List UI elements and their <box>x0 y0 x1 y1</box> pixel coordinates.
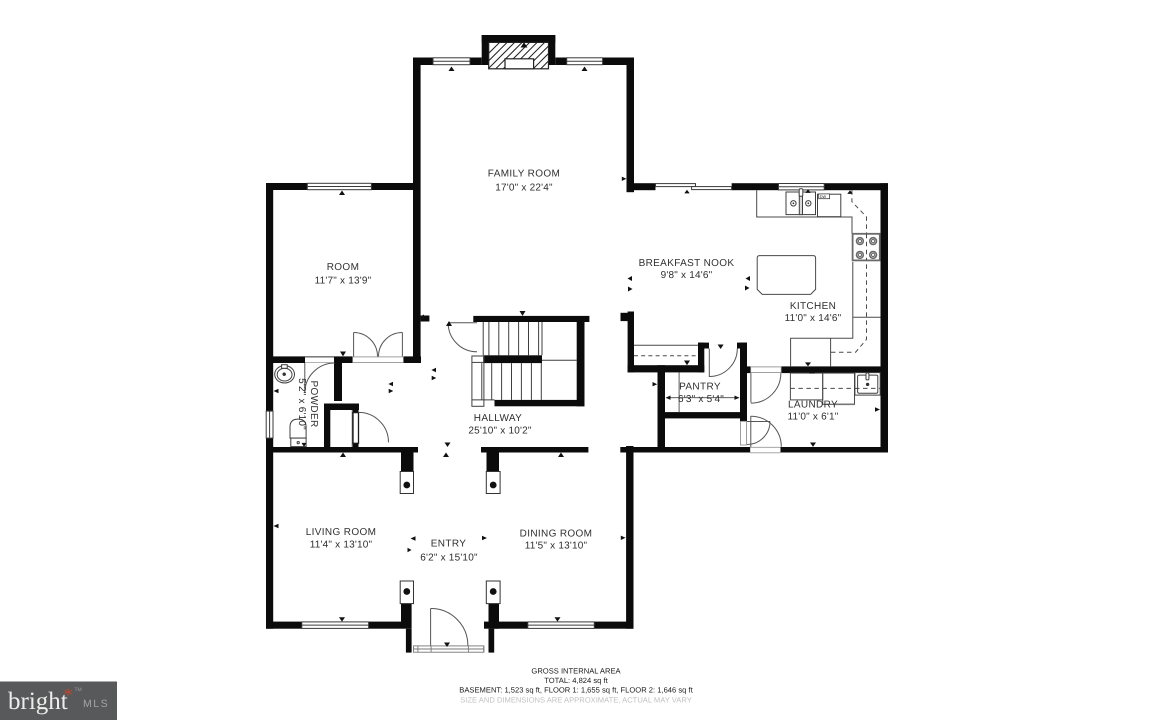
svg-text:11'0" x 14'6": 11'0" x 14'6" <box>785 313 842 324</box>
svg-text:bright: bright <box>8 688 68 715</box>
svg-text:11'4" x 13'10": 11'4" x 13'10" <box>310 540 373 551</box>
svg-text:LIVING ROOM: LIVING ROOM <box>306 527 377 538</box>
svg-text:MLS: MLS <box>83 698 109 710</box>
svg-text:17'0" x 22'4": 17'0" x 22'4" <box>495 183 553 194</box>
svg-text:DW: DW <box>820 195 827 199</box>
svg-text:DINING ROOM: DINING ROOM <box>520 529 593 540</box>
svg-text:6'2" x 15'10": 6'2" x 15'10" <box>420 553 478 564</box>
svg-text:FAMILY ROOM: FAMILY ROOM <box>488 169 560 180</box>
svg-text:TOTAL: 4,824 sq ft: TOTAL: 4,824 sq ft <box>544 676 608 685</box>
svg-text:HALLWAY: HALLWAY <box>474 413 522 424</box>
svg-text:9'8" x 14'6": 9'8" x 14'6" <box>661 270 713 281</box>
svg-text:5'2" x 6'10": 5'2" x 6'10" <box>296 378 307 430</box>
svg-text:11'5" x 13'10": 11'5" x 13'10" <box>525 541 588 552</box>
svg-text:ENTRY: ENTRY <box>431 539 466 550</box>
svg-text:GROSS INTERNAL AREA: GROSS INTERNAL AREA <box>531 667 621 676</box>
svg-text:11'0" x 6'1": 11'0" x 6'1" <box>788 412 839 423</box>
svg-text:TM: TM <box>75 687 82 693</box>
svg-text:KITCHEN: KITCHEN <box>790 301 836 312</box>
svg-text:LAUNDRY: LAUNDRY <box>788 400 838 411</box>
svg-text:25'10" x 10'2": 25'10" x 10'2" <box>468 426 531 437</box>
svg-text:BREAKFAST NOOK: BREAKFAST NOOK <box>639 258 735 269</box>
svg-text:ROOM: ROOM <box>327 262 360 273</box>
svg-text:6'3" x 5'4": 6'3" x 5'4" <box>678 394 724 405</box>
svg-text:PANTRY: PANTRY <box>679 382 721 393</box>
svg-text:SIZE AND DIMENSIONS ARE APPROX: SIZE AND DIMENSIONS ARE APPROXIMATE, ACT… <box>460 695 692 704</box>
svg-text:11'7" x 13'9": 11'7" x 13'9" <box>315 276 372 287</box>
svg-text:*: * <box>64 685 74 706</box>
svg-text:POWDER: POWDER <box>308 380 319 427</box>
svg-text:BASEMENT: 1,523 sq ft, FLOOR 1: BASEMENT: 1,523 sq ft, FLOOR 1: 1,655 sq… <box>459 686 693 695</box>
